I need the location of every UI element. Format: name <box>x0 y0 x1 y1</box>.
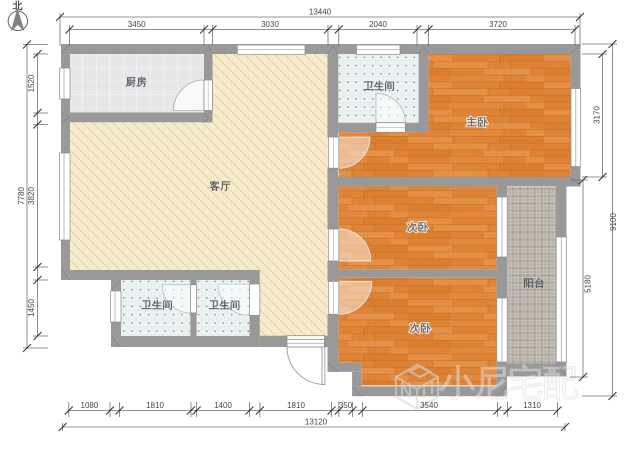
svg-text:3450: 3450 <box>128 20 146 29</box>
svg-text:1520: 1520 <box>27 74 36 92</box>
svg-text:1310: 1310 <box>523 401 541 410</box>
svg-text:3170: 3170 <box>593 106 602 124</box>
svg-text:7780: 7780 <box>17 187 26 205</box>
svg-text:9100: 9100 <box>609 213 618 231</box>
svg-text:13440: 13440 <box>309 8 332 17</box>
svg-text:1810: 1810 <box>287 401 305 410</box>
svg-text:3030: 3030 <box>261 20 279 29</box>
svg-text:1080: 1080 <box>81 401 99 410</box>
svg-text:3820: 3820 <box>27 187 36 205</box>
svg-text:1810: 1810 <box>146 401 164 410</box>
svg-text:1450: 1450 <box>27 299 36 317</box>
svg-text:2040: 2040 <box>369 20 387 29</box>
svg-text:350: 350 <box>339 401 353 410</box>
svg-text:5180: 5180 <box>584 275 593 293</box>
svg-text:13120: 13120 <box>305 418 328 427</box>
svg-text:3540: 3540 <box>420 401 438 410</box>
svg-text:3720: 3720 <box>489 20 507 29</box>
svg-text:1400: 1400 <box>214 401 232 410</box>
